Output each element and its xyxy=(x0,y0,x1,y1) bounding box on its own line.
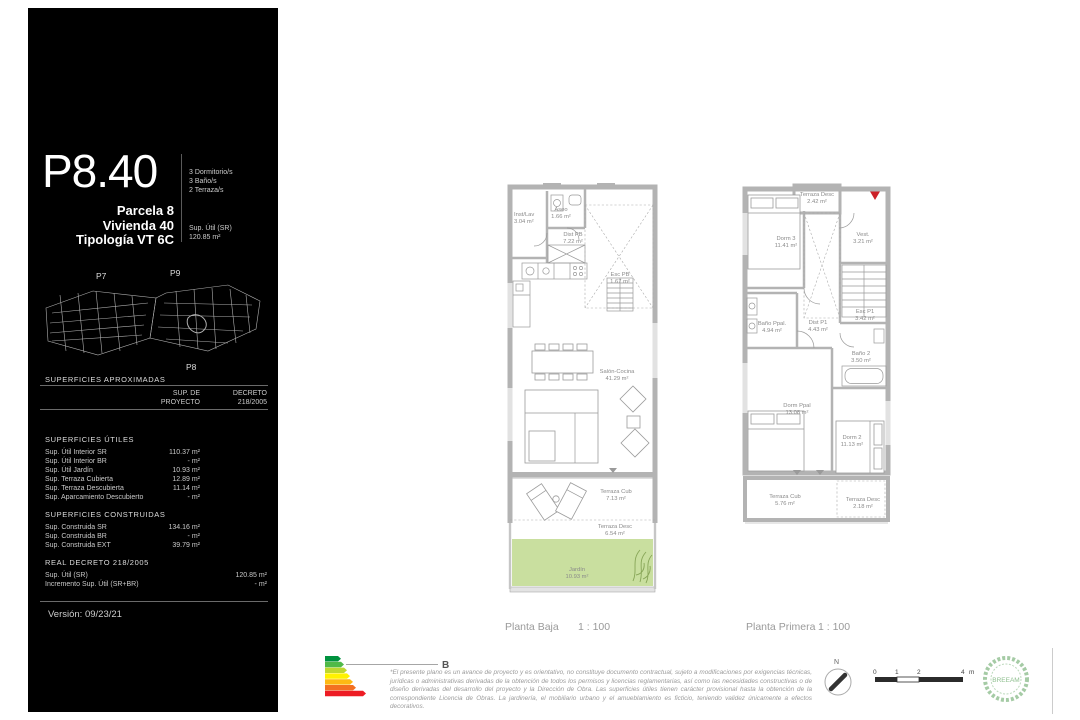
planta-baja-plan: Inst/Lav 3.04 m² Aseo 1.66 m² Dist PB 7.… xyxy=(505,183,670,595)
siteplan-label-p8: P8 xyxy=(186,362,197,372)
room-area: 3.21 m² xyxy=(853,239,873,245)
utiles-title: SUPERFICIES ÚTILES xyxy=(45,435,134,444)
unit-features: 3 Dormitorio/s 3 Baño/s 2 Terraza/s xyxy=(189,168,233,195)
scale-bar: 0 1 2 4 m xyxy=(870,667,980,689)
planta-primera-plan: Terraza Desc 2.42 m² Dorm 3 11.41 m² Ves… xyxy=(742,183,892,528)
parcela-label: Parcela 8 xyxy=(42,204,174,219)
svg-text:0: 0 xyxy=(873,669,877,676)
room-label: Aseo xyxy=(554,207,567,213)
approx-title: SUPERFICIES APROXIMADAS xyxy=(45,375,166,384)
siteplan-aerial-view: P7 P9 P8 xyxy=(38,263,268,373)
plan-caption-primera: Planta Primera xyxy=(746,621,815,633)
table-row: Sup. Terraza Cubierta12.89 m² xyxy=(45,476,268,485)
table-row: Sup. Útil Interior BR- m² xyxy=(45,458,268,467)
void-hatch xyxy=(804,213,840,318)
table-row: Sup. Construida EXT39.79 m² xyxy=(45,542,268,551)
legal-disclaimer: *El presente plano es un avance de proye… xyxy=(390,669,812,712)
table-row: Sup. Útil Jardín10.93 m² xyxy=(45,467,268,476)
room-area: 11.41 m² xyxy=(775,243,798,249)
plan-scale-baja: 1 : 100 xyxy=(578,621,610,633)
rule xyxy=(40,601,268,602)
version-label: Versión: 09/23/21 xyxy=(48,609,122,620)
svg-text:1: 1 xyxy=(895,669,899,676)
footer-divider xyxy=(1052,648,1053,714)
room-area: 4.43 m² xyxy=(808,327,828,333)
fridge-counter xyxy=(513,281,530,327)
tipologia-label: Tipología VT 6C xyxy=(42,233,174,248)
terraces-count: 2 Terraza/s xyxy=(189,186,233,195)
room-label: Dorm Ppal xyxy=(783,403,810,409)
room-area: 1.67 m² xyxy=(610,279,630,285)
dining-table xyxy=(532,344,593,380)
siteplan-labels: P7 P9 P8 xyxy=(96,268,197,372)
room-label: Inst/Lav xyxy=(514,212,534,218)
room-label: Dist PB xyxy=(563,232,582,238)
bathrooms-count: 3 Baño/s xyxy=(189,177,233,186)
room-area: 3.42 m² xyxy=(855,316,875,322)
table-row: Sup. Terraza Descubierta11.14 m² xyxy=(45,485,268,494)
sun-loungers xyxy=(527,483,587,521)
room-area: 3.04 m² xyxy=(514,219,534,225)
room-label: Terraza Desc xyxy=(800,192,834,198)
garden-bottom-wall xyxy=(510,587,655,592)
room-area: 11.13 m² xyxy=(841,442,864,448)
sup-util-header: Sup. Útil (SR) 120.85 m² xyxy=(189,224,232,242)
bed-dorm-ppal xyxy=(748,411,804,471)
construidas-title: SUPERFICIES CONSTRUIDAS xyxy=(45,510,165,519)
siteplan-wireframe xyxy=(46,285,260,355)
room-label: Esc P1 xyxy=(856,309,874,315)
room-label: Dorm 2 xyxy=(842,435,861,441)
kitchen-counter xyxy=(513,263,587,327)
sup-util-value: 120.85 m² xyxy=(189,233,232,242)
unit-subtitle: Parcela 8 Vivienda 40 Tipología VT 6C xyxy=(42,204,174,248)
decreto-title: REAL DECRETO 218/2005 xyxy=(45,558,149,567)
breeam-label: BREEAM xyxy=(992,677,1019,684)
room-area: 5.76 m² xyxy=(775,501,795,507)
sofa xyxy=(525,390,598,463)
vivienda-label: Vivienda 40 xyxy=(42,219,174,234)
void-hatch xyxy=(585,205,653,308)
plan-caption-baja: Planta Baja xyxy=(505,621,559,633)
room-area: 10.93 m² xyxy=(566,574,589,580)
room-area: 1.66 m² xyxy=(551,214,571,220)
room-area: 41.29 m² xyxy=(606,376,629,382)
plan-sheet: P8.40 Parcela 8 Vivienda 40 Tipología VT… xyxy=(0,0,1080,720)
scale-marks: 0 1 2 4 m xyxy=(873,669,974,676)
room-label: Baño 2 xyxy=(852,351,870,357)
table-row: Sup. Construida BR- m² xyxy=(45,533,268,542)
table-row: Sup. Aparcamiento Descubierto- m² xyxy=(45,494,268,503)
breeam-logo: BREEAM xyxy=(980,653,1032,705)
stove-icon xyxy=(573,266,582,275)
unit-code: P8.40 xyxy=(42,144,157,198)
shaft-hatch xyxy=(548,245,585,263)
room-area: 13.08 m² xyxy=(786,410,809,416)
room-label: Baño Ppal. xyxy=(758,321,787,327)
svg-text:2: 2 xyxy=(917,669,921,676)
sink-icon xyxy=(874,329,884,343)
room-area: 2.18 m² xyxy=(853,504,873,510)
room-area: 2.42 m² xyxy=(807,199,827,205)
room-label: Dist P1 xyxy=(809,320,828,326)
room-label: Dorm 3 xyxy=(776,236,795,242)
room-label: Terraza Desc xyxy=(846,497,880,503)
room-label: Salón-Cocina xyxy=(600,369,636,375)
bedrooms-count: 3 Dormitorio/s xyxy=(189,168,233,177)
sup-util-label: Sup. Útil (SR) xyxy=(189,224,232,233)
room-area: 4.94 m² xyxy=(762,328,782,334)
north-label: N xyxy=(834,659,839,666)
room-area: 7.13 m² xyxy=(606,496,626,502)
room-area: 7.22 m² xyxy=(563,239,583,245)
table-row: Sup. Construida SR134.16 m² xyxy=(45,524,268,533)
table-row: Incremento Sup. Útil (SR+BR)- m² xyxy=(45,581,268,590)
room-label: Terraza Desc xyxy=(598,524,632,530)
rule xyxy=(40,409,268,410)
svg-text:4: 4 xyxy=(961,669,965,676)
room-area: 6.54 m² xyxy=(605,531,625,537)
energy-bars xyxy=(325,656,366,696)
compass-needle-icon xyxy=(831,675,845,689)
room-label: Vest. xyxy=(857,232,870,238)
armchairs xyxy=(620,386,649,457)
siteplan-label-p9: P9 xyxy=(170,268,181,278)
col-decreto-header: DECRETO 218/2005 xyxy=(226,390,267,407)
header-divider xyxy=(181,154,182,242)
rule xyxy=(40,385,268,386)
room-label: Terraza Cub xyxy=(600,489,632,495)
siteplan-label-p7: P7 xyxy=(96,271,107,281)
plan-scale-primera: 1 : 100 xyxy=(818,621,850,633)
room-label: Esc PB xyxy=(610,272,629,278)
svg-text:m: m xyxy=(969,669,974,676)
col-proyecto-header: SUP. DE PROYECTO xyxy=(158,390,200,407)
bed-dorm3 xyxy=(748,195,800,269)
interior-walls xyxy=(510,187,585,263)
table-row: Sup. Útil (SR)120.85 m² xyxy=(45,572,268,581)
north-arrow: N xyxy=(820,655,860,700)
room-area: 3.50 m² xyxy=(851,358,871,364)
sink-icon xyxy=(526,267,534,275)
room-label: Jardín xyxy=(569,567,585,573)
room-label: Terraza Cub xyxy=(769,494,801,500)
sidebar-panel: P8.40 Parcela 8 Vivienda 40 Tipología VT… xyxy=(28,8,278,712)
toilet-icon xyxy=(569,195,581,205)
table-row: Sup. Útil Interior SR110.37 m² xyxy=(45,449,268,458)
